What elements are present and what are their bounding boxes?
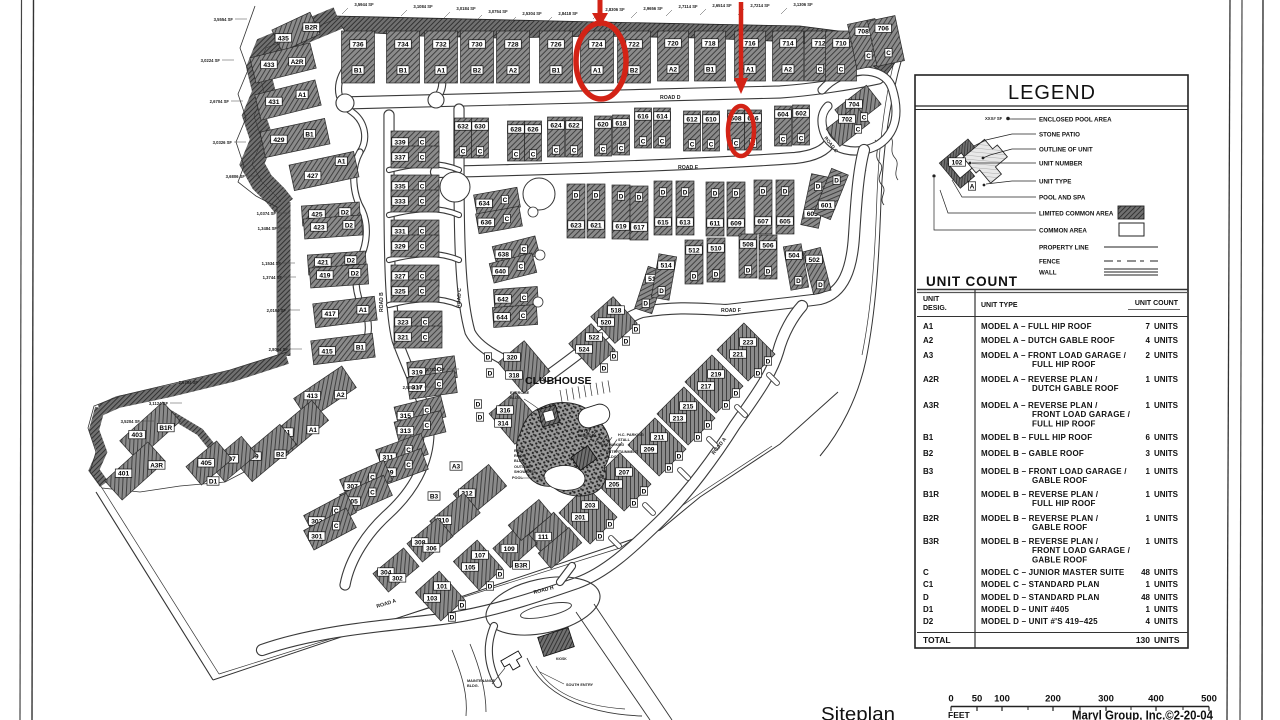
svg-text:ROOM: ROOM <box>514 454 526 458</box>
svg-text:A1: A1 <box>923 322 934 331</box>
svg-text:3,0224 SF: 3,0224 SF <box>201 58 221 63</box>
svg-text:2,7114 SF: 2,7114 SF <box>678 4 698 9</box>
svg-text:A1: A1 <box>298 92 307 99</box>
svg-text:520: 520 <box>601 319 612 326</box>
svg-text:205: 205 <box>609 481 620 488</box>
svg-text:UNITS: UNITS <box>1154 537 1179 546</box>
svg-text:616: 616 <box>637 113 648 120</box>
svg-text:601: 601 <box>821 203 832 210</box>
svg-text:D: D <box>594 192 599 199</box>
svg-text:1: 1 <box>1146 514 1151 523</box>
svg-text:C: C <box>856 126 861 133</box>
svg-text:425: 425 <box>311 211 322 218</box>
svg-text:C: C <box>619 145 624 152</box>
svg-text:612: 612 <box>686 116 697 123</box>
svg-text:DUTCH GABLE ROOF: DUTCH GABLE ROOF <box>1032 384 1119 393</box>
svg-text:405: 405 <box>201 460 212 467</box>
svg-text:610: 610 <box>705 116 716 123</box>
svg-text:UNITS: UNITS <box>1154 635 1180 645</box>
svg-text:B1: B1 <box>923 433 934 442</box>
svg-text:GABLE ROOF: GABLE ROOF <box>1032 523 1087 532</box>
svg-text:734: 734 <box>397 41 408 48</box>
svg-text:UNITS: UNITS <box>1154 568 1179 577</box>
svg-text:D: D <box>661 189 666 196</box>
svg-text:MODEL D – STANDARD PLAN: MODEL D – STANDARD PLAN <box>981 593 1100 602</box>
svg-text:211: 211 <box>654 434 665 441</box>
svg-text:BLDG.: BLDG. <box>510 396 522 400</box>
svg-text:502: 502 <box>809 257 820 264</box>
svg-text:504: 504 <box>788 253 799 260</box>
svg-text:736: 736 <box>352 41 363 48</box>
svg-text:A2R: A2R <box>923 375 939 384</box>
svg-text:209: 209 <box>644 446 655 453</box>
svg-text:1: 1 <box>1146 537 1151 546</box>
svg-text:ENTRY: ENTRY <box>578 429 591 433</box>
svg-text:BLDG.: BLDG. <box>606 455 618 459</box>
svg-text:D2: D2 <box>341 209 350 216</box>
svg-text:A1: A1 <box>309 427 318 434</box>
svg-text:609: 609 <box>730 220 741 227</box>
svg-text:109: 109 <box>504 546 515 553</box>
svg-text:UNITS: UNITS <box>1154 351 1179 360</box>
svg-text:C: C <box>420 154 425 161</box>
svg-text:417: 417 <box>325 311 336 318</box>
svg-text:512: 512 <box>688 247 699 254</box>
svg-text:UNIT TYPE: UNIT TYPE <box>981 302 1018 309</box>
svg-text:MODEL B – FRONT LOAD GARAGE /: MODEL B – FRONT LOAD GARAGE / <box>981 467 1127 476</box>
svg-text:D: D <box>692 273 697 280</box>
svg-text:207: 207 <box>619 469 630 476</box>
svg-text:403: 403 <box>132 432 143 439</box>
svg-text:D: D <box>612 353 617 360</box>
svg-text:48: 48 <box>1141 568 1150 577</box>
svg-text:427: 427 <box>307 173 318 180</box>
svg-text:337: 337 <box>394 154 405 161</box>
svg-text:A2: A2 <box>509 67 518 74</box>
svg-text:D: D <box>923 593 929 602</box>
svg-text:321: 321 <box>397 334 408 341</box>
svg-text:1: 1 <box>1146 580 1151 589</box>
svg-text:UNIT TYPE: UNIT TYPE <box>1039 179 1071 186</box>
svg-text:A1: A1 <box>746 66 755 73</box>
svg-text:KIOSK: KIOSK <box>556 657 567 661</box>
svg-text:A1: A1 <box>359 307 368 314</box>
svg-text:3,5944 SF: 3,5944 SF <box>354 2 374 7</box>
svg-text:3,1306 SF: 3,1306 SF <box>793 2 813 7</box>
svg-text:ROAD C: ROAD C <box>456 288 463 308</box>
svg-text:320: 320 <box>507 354 518 361</box>
svg-text:C: C <box>521 313 526 320</box>
svg-text:636: 636 <box>481 220 492 227</box>
svg-text:429: 429 <box>273 137 284 144</box>
svg-text:ROAD D: ROAD D <box>660 95 681 101</box>
svg-text:LEGEND: LEGEND <box>1008 82 1095 104</box>
svg-text:708: 708 <box>858 29 869 36</box>
svg-text:D2: D2 <box>347 257 356 264</box>
svg-text:C: C <box>424 423 429 430</box>
svg-text:C: C <box>839 66 844 73</box>
svg-text:215: 215 <box>683 403 694 410</box>
svg-text:BLDG.: BLDG. <box>514 459 526 463</box>
svg-text:C: C <box>461 148 466 155</box>
svg-text:B1: B1 <box>354 67 363 74</box>
svg-text:2: 2 <box>1146 351 1151 360</box>
svg-text:720: 720 <box>667 40 678 47</box>
svg-text:107: 107 <box>475 552 486 559</box>
svg-text:728: 728 <box>507 41 518 48</box>
svg-text:3,1084 SF: 3,1084 SF <box>413 4 433 9</box>
svg-text:102: 102 <box>952 159 963 166</box>
svg-text:4: 4 <box>1146 336 1151 345</box>
svg-text:D: D <box>818 282 823 289</box>
svg-text:FULL HIP ROOF: FULL HIP ROOF <box>1032 419 1096 428</box>
svg-text:A1: A1 <box>437 67 446 74</box>
svg-text:314: 314 <box>498 420 509 427</box>
svg-text:2,6704 SF: 2,6704 SF <box>210 99 230 104</box>
svg-text:716: 716 <box>744 40 755 47</box>
svg-text:FRONT LOAD GARAGE /: FRONT LOAD GARAGE / <box>1032 546 1131 555</box>
svg-text:D: D <box>498 571 503 578</box>
svg-text:2,6514 SF: 2,6514 SF <box>712 3 732 8</box>
svg-text:ROAD E: ROAD E <box>678 165 699 171</box>
svg-text:COMMON AREA: COMMON AREA <box>1039 228 1087 235</box>
svg-text:200: 200 <box>1045 694 1061 705</box>
svg-text:UNIT NUMBER: UNIT NUMBER <box>1039 161 1083 168</box>
svg-text:626: 626 <box>527 126 538 133</box>
svg-text:327: 327 <box>394 273 405 280</box>
svg-text:C: C <box>531 151 536 158</box>
svg-text:D: D <box>637 194 642 201</box>
svg-text:SOUTH ENTRY: SOUTH ENTRY <box>566 683 594 687</box>
svg-text:2,7214 SF: 2,7214 SF <box>750 3 770 8</box>
svg-text:ROAD F: ROAD F <box>721 308 741 314</box>
svg-text:C: C <box>660 138 665 145</box>
svg-text:D: D <box>683 189 688 196</box>
svg-text:C: C <box>420 273 425 280</box>
svg-text:D2: D2 <box>923 617 934 626</box>
svg-text:A2R: A2R <box>291 59 304 66</box>
svg-text:C: C <box>554 147 559 154</box>
svg-text:B1: B1 <box>399 67 408 74</box>
svg-text:C: C <box>734 140 739 147</box>
svg-text:0: 0 <box>948 694 953 705</box>
svg-text:D: D <box>766 268 771 275</box>
svg-text:339: 339 <box>394 139 405 146</box>
svg-text:712: 712 <box>814 40 825 47</box>
svg-text:718: 718 <box>704 40 715 47</box>
svg-text:MODEL D – UNIT #'S 419–425: MODEL D – UNIT #'S 419–425 <box>981 617 1098 626</box>
svg-text:UNITS: UNITS <box>1154 467 1179 476</box>
svg-text:50: 50 <box>972 694 983 705</box>
svg-text:C: C <box>503 197 508 204</box>
svg-text:400: 400 <box>1148 694 1164 705</box>
svg-text:2,8064 SF: 2,8064 SF <box>269 347 289 352</box>
svg-text:506: 506 <box>762 242 773 249</box>
svg-text:C1: C1 <box>923 580 934 589</box>
svg-text:621: 621 <box>590 222 601 229</box>
svg-text:C: C <box>423 319 428 326</box>
svg-text:C: C <box>690 141 695 148</box>
svg-text:D1: D1 <box>923 605 934 614</box>
svg-text:REST: REST <box>514 449 525 453</box>
svg-text:7: 7 <box>1146 322 1151 331</box>
svg-text:618: 618 <box>615 120 626 127</box>
svg-text:C: C <box>518 264 523 271</box>
svg-text:B2: B2 <box>923 449 934 458</box>
svg-text:522: 522 <box>589 334 600 341</box>
svg-text:XXX# SF: XXX# SF <box>985 116 1003 121</box>
svg-text:524: 524 <box>579 346 590 353</box>
svg-text:419: 419 <box>319 272 330 279</box>
svg-text:100: 100 <box>994 694 1010 705</box>
svg-text:UNIT: UNIT <box>923 296 940 303</box>
svg-text:2,5304 SF: 2,5304 SF <box>522 11 542 16</box>
svg-text:3,0326 SF: 3,0326 SF <box>213 140 233 145</box>
svg-text:UNIT COUNT: UNIT COUNT <box>1135 300 1179 307</box>
svg-text:3,6806 SF: 3,6806 SF <box>226 174 246 179</box>
svg-text:614: 614 <box>656 113 667 120</box>
svg-text:H.C. PARKING: H.C. PARKING <box>618 433 644 437</box>
svg-text:ENTERTAINMENT: ENTERTAINMENT <box>606 450 639 454</box>
svg-text:MODEL A – DUTCH GABLE ROOF: MODEL A – DUTCH GABLE ROOF <box>981 336 1115 345</box>
svg-text:PERGOLA: PERGOLA <box>578 434 597 438</box>
svg-text:622: 622 <box>568 122 579 129</box>
svg-text:UNITS: UNITS <box>1154 336 1179 345</box>
svg-text:642: 642 <box>497 296 508 303</box>
svg-text:N.C. PARKING: N.C. PARKING <box>601 443 624 447</box>
svg-text:D: D <box>488 370 493 377</box>
svg-text:D: D <box>734 390 739 397</box>
svg-text:Siteplan: Siteplan <box>821 705 895 720</box>
svg-text:LIMITED COMMON AREA: LIMITED COMMON AREA <box>1039 211 1114 218</box>
svg-text:D: D <box>486 354 491 361</box>
svg-text:ROAD B: ROAD B <box>379 292 385 312</box>
svg-text:C: C <box>818 66 823 73</box>
svg-text:2,8704 SF: 2,8704 SF <box>179 380 199 385</box>
svg-text:FENCE: FENCE <box>1039 259 1060 266</box>
svg-text:C: C <box>334 523 339 530</box>
svg-text:1: 1 <box>1146 490 1151 499</box>
svg-text:6: 6 <box>1146 433 1151 442</box>
svg-text:300: 300 <box>1098 694 1114 705</box>
svg-text:318: 318 <box>509 372 520 379</box>
svg-text:OUTSIDE: OUTSIDE <box>514 465 531 469</box>
svg-text:C: C <box>423 334 428 341</box>
svg-text:628: 628 <box>510 126 521 133</box>
svg-text:301: 301 <box>311 533 322 540</box>
svg-text:3,1124 SF: 3,1124 SF <box>149 401 169 406</box>
svg-text:1,3484 SF: 1,3484 SF <box>258 226 278 231</box>
svg-text:D: D <box>632 500 637 507</box>
svg-text:203: 203 <box>585 502 596 509</box>
svg-text:325: 325 <box>394 288 405 295</box>
svg-text:3,0184 SF: 3,0184 SF <box>456 6 476 11</box>
svg-text:D: D <box>478 414 483 421</box>
svg-text:219: 219 <box>711 371 722 378</box>
svg-text:1,0374 SF: 1,0374 SF <box>257 211 277 216</box>
svg-text:MODEL B – FULL HIP ROOF: MODEL B – FULL HIP ROOF <box>981 433 1092 442</box>
svg-text:UNITS: UNITS <box>1154 322 1179 331</box>
svg-text:221: 221 <box>733 351 744 358</box>
svg-text:613: 613 <box>679 219 690 226</box>
svg-text:D: D <box>460 602 465 609</box>
svg-text:306: 306 <box>426 545 437 552</box>
svg-text:111: 111 <box>538 534 549 541</box>
svg-text:SPA: SPA <box>597 476 605 480</box>
svg-text:WALL: WALL <box>1039 270 1057 277</box>
svg-text:MODEL A – REVERSE PLAN /: MODEL A – REVERSE PLAN / <box>981 401 1098 410</box>
svg-text:217: 217 <box>701 383 712 390</box>
svg-text:604: 604 <box>777 111 788 118</box>
svg-text:101: 101 <box>437 583 448 590</box>
svg-text:704: 704 <box>849 101 860 108</box>
svg-text:732: 732 <box>435 41 446 48</box>
svg-text:C: C <box>521 247 526 254</box>
svg-text:D: D <box>761 188 766 195</box>
svg-text:B1: B1 <box>552 67 561 74</box>
svg-text:644: 644 <box>496 314 507 321</box>
svg-text:518: 518 <box>611 307 622 314</box>
svg-text:510: 510 <box>710 245 721 252</box>
svg-text:4: 4 <box>1146 617 1151 626</box>
svg-text:STONE PATIO: STONE PATIO <box>1039 132 1080 139</box>
svg-text:D1: D1 <box>209 478 218 485</box>
svg-text:C: C <box>370 490 375 497</box>
svg-text:1,3744 SF: 1,3744 SF <box>263 275 283 280</box>
svg-text:3,5204 SF: 3,5204 SF <box>121 419 141 424</box>
svg-text:B2R: B2R <box>305 25 318 32</box>
svg-text:A2: A2 <box>923 336 934 345</box>
svg-text:640: 640 <box>495 269 506 276</box>
svg-text:316: 316 <box>500 407 511 414</box>
svg-text:702: 702 <box>842 116 853 123</box>
svg-text:130: 130 <box>1136 635 1150 645</box>
svg-text:500: 500 <box>1201 694 1217 705</box>
svg-text:D: D <box>488 583 493 590</box>
svg-text:UNITS: UNITS <box>1154 605 1179 614</box>
svg-text:607: 607 <box>757 218 768 225</box>
svg-text:MODEL B – REVERSE PLAN /: MODEL B – REVERSE PLAN / <box>981 490 1099 499</box>
svg-text:UNITS: UNITS <box>1154 514 1179 523</box>
svg-text:514: 514 <box>661 263 672 270</box>
svg-text:C: C <box>709 141 714 148</box>
svg-text:D: D <box>608 521 613 528</box>
svg-text:435: 435 <box>278 35 289 42</box>
svg-text:C: C <box>420 288 425 295</box>
svg-text:2,0194 SF: 2,0194 SF <box>267 308 287 313</box>
svg-text:C: C <box>514 151 519 158</box>
svg-text:MODEL C – JUNIOR MASTER SUITE: MODEL C – JUNIOR MASTER SUITE <box>981 568 1125 577</box>
svg-text:B1: B1 <box>706 66 715 73</box>
svg-text:ENCLOSED POOL AREA: ENCLOSED POOL AREA <box>1039 117 1112 124</box>
svg-text:FEET: FEET <box>948 710 971 720</box>
svg-text:A2: A2 <box>336 392 345 399</box>
svg-text:UNITS: UNITS <box>1154 617 1179 626</box>
svg-text:B2: B2 <box>473 67 482 74</box>
svg-text:D: D <box>696 434 701 441</box>
svg-text:UNIT COUNT: UNIT COUNT <box>926 274 1018 289</box>
svg-text:433: 433 <box>263 62 274 69</box>
svg-text:D: D <box>667 465 672 472</box>
svg-text:D: D <box>756 370 761 377</box>
svg-text:722: 722 <box>628 41 639 48</box>
svg-text:D: D <box>642 488 647 495</box>
svg-text:B1: B1 <box>356 344 365 351</box>
svg-text:D: D <box>602 365 607 372</box>
svg-text:EXERCISE: EXERCISE <box>510 391 530 395</box>
svg-text:329: 329 <box>394 243 405 250</box>
svg-text:MODEL A – FRONT LOAD GARAGE /: MODEL A – FRONT LOAD GARAGE / <box>981 351 1127 360</box>
svg-text:B3: B3 <box>923 467 934 476</box>
svg-text:B1: B1 <box>305 131 314 138</box>
svg-text:B1R: B1R <box>159 425 172 432</box>
svg-text:A3: A3 <box>452 463 461 470</box>
svg-text:A3R: A3R <box>923 401 939 410</box>
svg-text:C: C <box>406 462 411 469</box>
svg-text:Maryl Group, Inc.©2-20-04: Maryl Group, Inc.©2-20-04 <box>1072 708 1214 720</box>
svg-text:724: 724 <box>591 41 602 48</box>
svg-text:B1R: B1R <box>923 490 939 499</box>
svg-text:D: D <box>659 288 664 295</box>
svg-text:POOL AND SPA: POOL AND SPA <box>1039 195 1086 202</box>
svg-text:A3R: A3R <box>150 462 163 469</box>
svg-text:632: 632 <box>457 123 468 130</box>
svg-text:POOL: POOL <box>512 476 523 480</box>
svg-text:D: D <box>766 358 771 365</box>
svg-text:605: 605 <box>779 218 790 225</box>
svg-text:638: 638 <box>498 252 509 259</box>
svg-text:PROPERTY LINE: PROPERTY LINE <box>1039 245 1089 252</box>
svg-text:D: D <box>619 193 624 200</box>
svg-text:223: 223 <box>743 339 754 346</box>
svg-text:C: C <box>601 146 606 153</box>
svg-text:B3: B3 <box>430 493 439 500</box>
svg-text:401: 401 <box>118 471 129 478</box>
svg-text:B2: B2 <box>630 67 639 74</box>
svg-text:2,7524 SF: 2,7524 SF <box>426 367 446 372</box>
svg-text:D: D <box>450 614 455 621</box>
svg-text:A2: A2 <box>784 66 793 73</box>
svg-text:710: 710 <box>835 40 846 47</box>
svg-text:630: 630 <box>474 123 485 130</box>
svg-text:611: 611 <box>710 220 721 227</box>
svg-text:B3R: B3R <box>923 537 939 546</box>
svg-text:MODEL B – REVERSE PLAN /: MODEL B – REVERSE PLAN / <box>981 514 1099 523</box>
svg-text:1: 1 <box>1146 375 1151 384</box>
svg-text:MODEL B – GABLE ROOF: MODEL B – GABLE ROOF <box>981 449 1084 458</box>
svg-text:B2: B2 <box>276 452 285 459</box>
svg-text:B3R: B3R <box>514 562 527 569</box>
svg-text:1: 1 <box>1146 467 1151 476</box>
svg-text:C: C <box>420 243 425 250</box>
svg-text:331: 331 <box>394 228 405 235</box>
svg-text:2,9656 SF: 2,9656 SF <box>643 6 663 11</box>
svg-text:D: D <box>677 453 682 460</box>
svg-text:620: 620 <box>597 121 608 128</box>
svg-text:D: D <box>734 190 739 197</box>
svg-text:3: 3 <box>1146 449 1151 458</box>
svg-text:C: C <box>437 381 442 388</box>
svg-text:GABLE ROOF: GABLE ROOF <box>1032 555 1087 564</box>
svg-text:D2: D2 <box>345 222 354 229</box>
svg-text:623: 623 <box>570 222 581 229</box>
svg-text:D: D <box>796 278 801 285</box>
svg-text:A1: A1 <box>593 67 602 74</box>
svg-text:A: A <box>970 183 975 190</box>
svg-text:615: 615 <box>657 219 668 226</box>
svg-text:714: 714 <box>782 40 793 47</box>
svg-text:C: C <box>420 198 425 205</box>
